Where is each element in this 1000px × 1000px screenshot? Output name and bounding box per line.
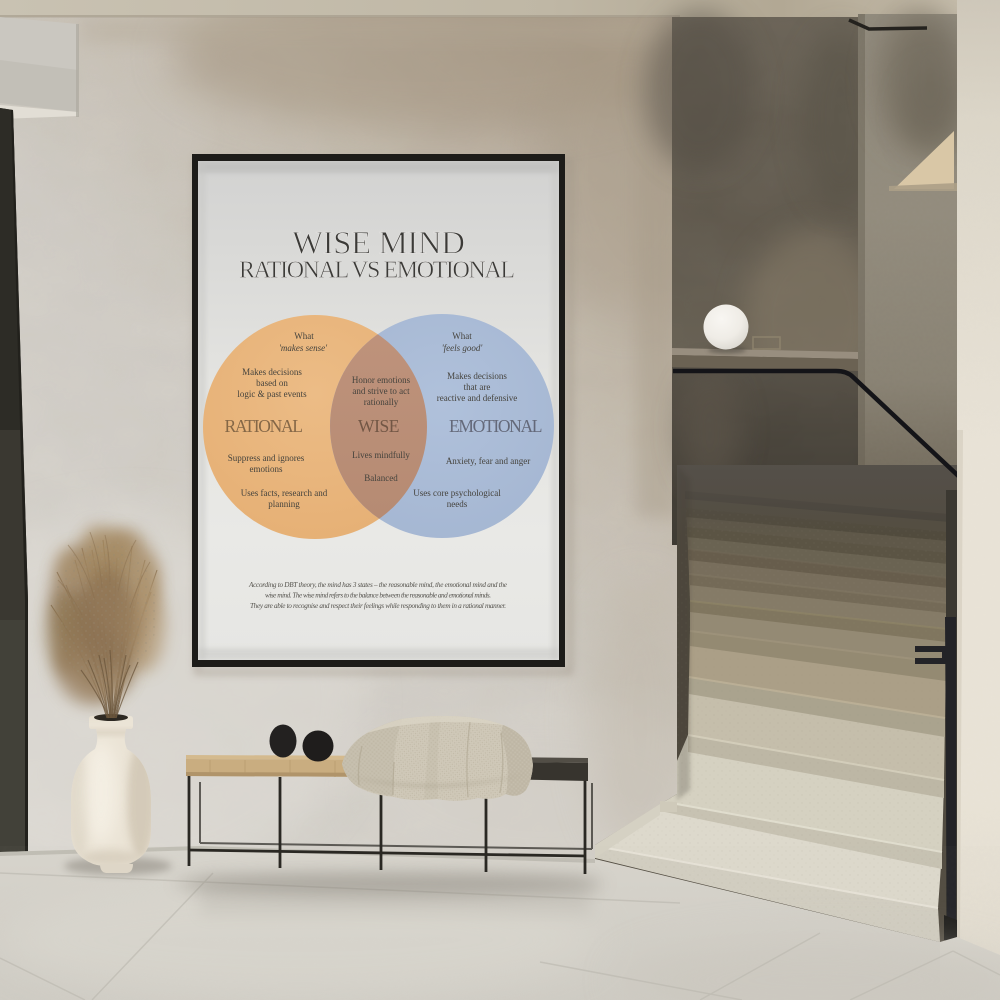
svg-text:Anxiety, fear and anger: Anxiety, fear and anger — [446, 456, 530, 466]
svg-text:needs: needs — [447, 499, 468, 509]
svg-text:Makes decisions: Makes decisions — [447, 371, 507, 381]
svg-text:Uses core psychological: Uses core psychological — [413, 488, 501, 498]
svg-text:What: What — [294, 331, 314, 341]
svg-text:wise mind. The wise mind refer: wise mind. The wise mind refers to the b… — [265, 592, 491, 600]
svg-text:What: What — [452, 331, 472, 341]
svg-text:Lives mindfully: Lives mindfully — [352, 450, 410, 460]
svg-text:RATIONAL VS EMOTIONAL: RATIONAL VS EMOTIONAL — [239, 258, 515, 284]
svg-text:based on: based on — [256, 378, 288, 388]
svg-text:Suppress and ignores: Suppress and ignores — [228, 453, 305, 463]
svg-text:They are able to recognise and: They are able to recognise and respect t… — [250, 602, 506, 610]
svg-text:WISE MIND: WISE MIND — [292, 226, 468, 262]
svg-text:Uses facts, research and: Uses facts, research and — [241, 488, 328, 498]
svg-text:emotions: emotions — [250, 464, 283, 474]
svg-text:Makes decisions: Makes decisions — [242, 367, 302, 377]
svg-text:planning: planning — [268, 499, 300, 509]
svg-text:'makes sense': 'makes sense' — [279, 343, 328, 353]
svg-text:WISE: WISE — [358, 416, 402, 436]
svg-text:and strive to act: and strive to act — [352, 386, 410, 396]
svg-text:According to DBT theory, the m: According to DBT theory, the mind has 3 … — [248, 581, 508, 589]
svg-text:that are: that are — [464, 382, 491, 392]
svg-text:RATIONAL: RATIONAL — [225, 416, 306, 436]
svg-text:'feels good': 'feels good' — [442, 343, 484, 353]
svg-text:Balanced: Balanced — [364, 473, 398, 483]
svg-text:rationally: rationally — [364, 397, 399, 407]
svg-text:logic & past events: logic & past events — [237, 389, 307, 399]
svg-text:EMOTIONAL: EMOTIONAL — [449, 416, 545, 436]
svg-text:Honor emotions: Honor emotions — [352, 375, 411, 385]
svg-text:reactive and defensive: reactive and defensive — [437, 393, 517, 403]
